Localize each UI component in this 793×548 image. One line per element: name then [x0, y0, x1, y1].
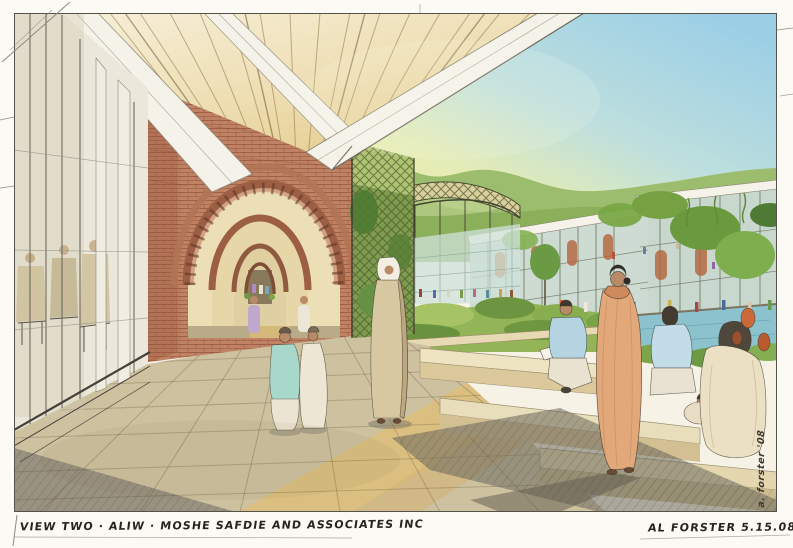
wash-shade: [40, 420, 400, 500]
watercolor-rendering: VIEW TWO · ALIW · MOSHE SAFDIE AND ASSOC…: [0, 0, 793, 548]
artist-signature-vertical: a. forster '08: [756, 429, 767, 508]
wash-highlight: [300, 40, 600, 160]
rendering-scene: [0, 0, 793, 548]
artist-credit: AL FORSTER 5.15.08: [647, 520, 793, 534]
glass-curtain-wall: [14, 13, 150, 462]
